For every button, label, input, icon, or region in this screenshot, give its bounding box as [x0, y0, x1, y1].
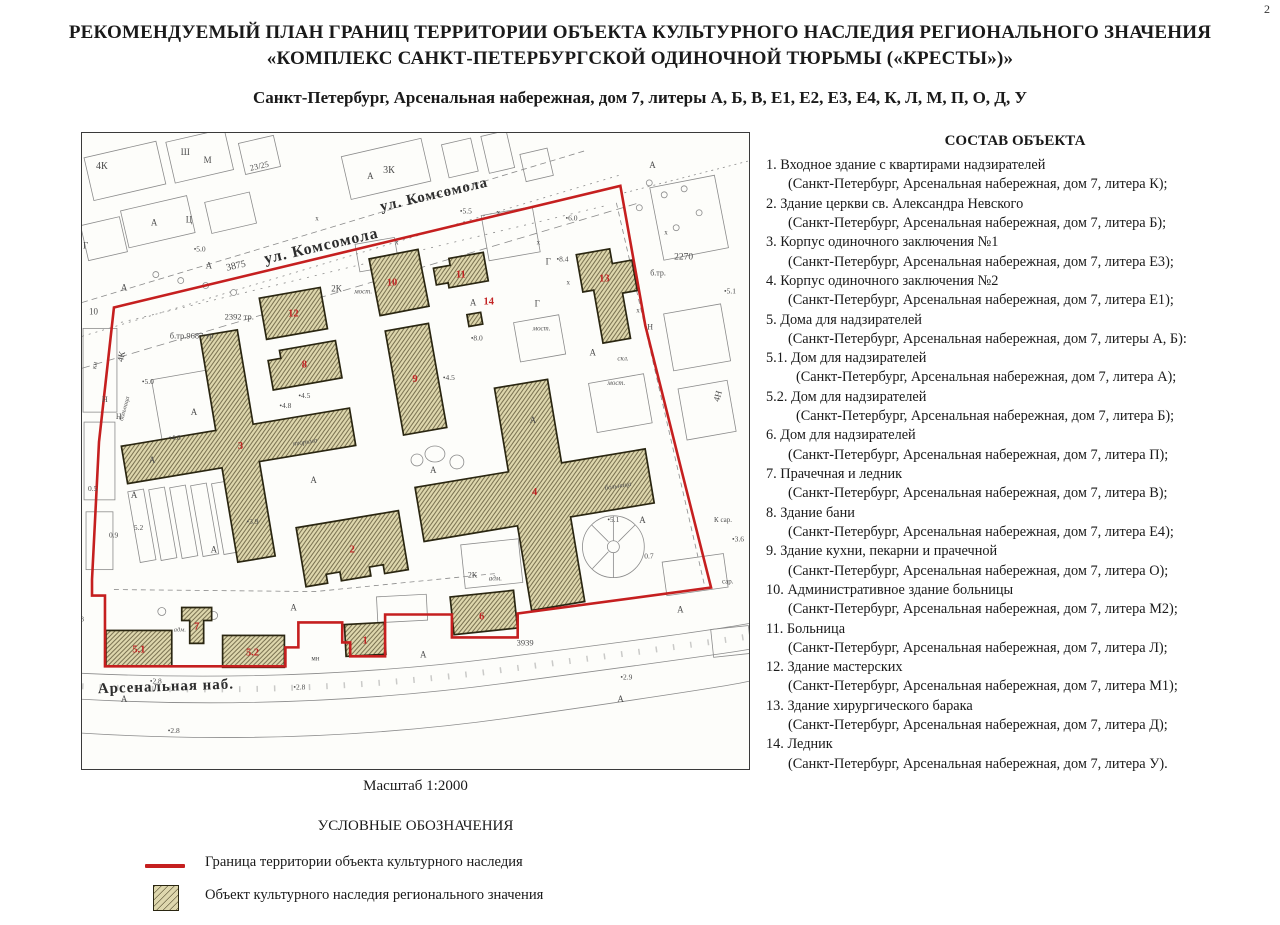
- building-number-label: 1: [363, 635, 368, 646]
- map-annotation: •8.4: [557, 255, 569, 264]
- map-annotation: М: [204, 155, 212, 165]
- map-annotation: А: [589, 347, 596, 357]
- boundary-line-swatch: [145, 864, 185, 868]
- building-number-label: 8: [302, 359, 307, 370]
- building-number-label: 4: [532, 487, 538, 498]
- hatch-swatch: [153, 885, 179, 911]
- map-annotation: х: [567, 279, 571, 287]
- composition-item-address: (Санкт-Петербург, Арсенальная набережная…: [766, 639, 1264, 658]
- map-annotation: А: [121, 694, 128, 704]
- map-annotation: •2.8: [293, 682, 305, 691]
- map-annotation: 0.5: [88, 484, 98, 493]
- page-title-line2: «КОМПЛЕКС САНКТ-ПЕТЕРБУРГСКОЙ ОДИНОЧНОЙ …: [30, 46, 1250, 72]
- map-annotation: х: [395, 239, 399, 247]
- map-annotation: А: [206, 261, 213, 271]
- composition-item: 5.1. Дом для надзирателей: [766, 349, 1264, 368]
- street-label: ул. Комсомола: [379, 175, 490, 215]
- building-number-label: 7: [194, 621, 199, 632]
- map-annotation: х: [315, 215, 319, 223]
- map-annotation: А: [649, 160, 656, 170]
- map-annotation: •5.0: [142, 377, 154, 386]
- map-annotation: А: [617, 694, 624, 704]
- map-annotation: •2.8: [168, 726, 180, 735]
- map-annotation: мост.: [353, 287, 372, 295]
- map-annotation: •5.1: [607, 515, 619, 524]
- map-annotation: адм.: [174, 626, 187, 633]
- map-annotation: х: [664, 229, 668, 237]
- map-annotation: А: [639, 515, 646, 525]
- legend-title: УСЛОВНЫЕ ОБОЗНАЧЕНИЯ: [81, 818, 750, 835]
- map-annotation: А: [151, 218, 158, 228]
- map-annotation: •2.9: [620, 672, 632, 681]
- map-scale-label: Масштаб 1:2000: [81, 778, 750, 795]
- composition-item-address: (Санкт-Петербург, Арсенальная набережная…: [766, 677, 1264, 696]
- composition-item-address: (Санкт-Петербург, Арсенальная набережная…: [766, 407, 1264, 426]
- map-annotation: 3875: [225, 259, 247, 274]
- composition-item-address: (Санкт-Петербург, Арсенальная набережная…: [766, 368, 1264, 387]
- map-annotation: Г: [546, 257, 551, 267]
- map-annotation: 2К: [331, 284, 342, 294]
- composition-item-address: (Санкт-Петербург, Арсенальная набережная…: [766, 562, 1264, 581]
- map-annotation: Ш: [181, 147, 190, 157]
- composition-item: 11. Больница: [766, 620, 1264, 639]
- composition-item: 5.2. Дом для надзирателей: [766, 388, 1264, 407]
- composition-item: 8. Здание бани: [766, 504, 1264, 523]
- composition-list: 1. Входное здание с квартирами надзирате…: [766, 156, 1264, 774]
- composition-item-address: (Санкт-Петербург, Арсенальная набережная…: [766, 716, 1264, 735]
- map-canvas: ул. Комсомолаул. КомсомолаАрсенальная на…: [82, 133, 749, 769]
- map-annotation: •6.0: [566, 214, 578, 223]
- composition-item-address: (Санкт-Петербург, Арсенальная набережная…: [766, 214, 1264, 233]
- map-annotation: А: [290, 602, 297, 612]
- street-label: ул. Комсомола: [262, 225, 380, 268]
- map-annotation: Н: [102, 395, 108, 404]
- map-annotation: •5.5: [460, 207, 472, 216]
- map-annotation: кн: [90, 361, 99, 370]
- map-annotation: 3939: [517, 637, 534, 647]
- map-annotation: Н: [647, 322, 653, 331]
- map-annotation: сар.: [722, 578, 734, 586]
- map-annotation: мн: [311, 654, 319, 662]
- map-annotation: 23/25: [249, 159, 270, 173]
- map-annotation: б.тр.9687 тр: [170, 330, 214, 340]
- map-annotation: Г: [535, 298, 540, 308]
- composition-panel: СОСТАВ ОБЪЕКТА 1. Входное здание с кварт…: [766, 133, 1264, 774]
- map-annotation: 0.9: [109, 531, 119, 540]
- map-annotation: •4.5: [443, 373, 455, 382]
- map-annotation: 10: [89, 306, 98, 316]
- building-number-label: 6: [479, 611, 484, 622]
- building-10: [369, 249, 429, 315]
- building-number-label: 11: [456, 270, 466, 281]
- composition-item-address: (Санкт-Петербург, Арсенальная набережная…: [766, 330, 1264, 349]
- composition-item: 10. Административное здание больницы: [766, 581, 1264, 600]
- composition-item-address: (Санкт-Петербург, Арсенальная набережная…: [766, 600, 1264, 619]
- map-annotation: мост.: [532, 324, 551, 332]
- map-annotation: А: [211, 545, 218, 555]
- map-annotation: б.тр.: [650, 269, 666, 278]
- map-annotation: А: [191, 407, 198, 417]
- building-number-label: 5.1: [132, 644, 145, 655]
- composition-item: 3. Корпус одиночного заключения №1: [766, 233, 1264, 252]
- composition-item-address: (Санкт-Петербург, Арсенальная набережная…: [766, 446, 1264, 465]
- map-annotation: А: [677, 604, 684, 614]
- document-page: 2 РЕКОМЕНДУЕМЫЙ ПЛАН ГРАНИЦ ТЕРРИТОРИИ О…: [0, 0, 1280, 925]
- composition-item-address: (Санкт-Петербург, Арсенальная набережная…: [766, 523, 1264, 542]
- composition-item: 12. Здание мастерских: [766, 658, 1264, 677]
- legend-label-object: Объект культурного наследия региональног…: [205, 887, 543, 904]
- page-number: 2: [1264, 2, 1270, 17]
- page-subtitle: Санкт-Петербург, Арсенальная набережная,…: [30, 88, 1250, 108]
- site-plan-map: ул. Комсомолаул. КомсомолаАрсенальная на…: [81, 132, 750, 770]
- map-annotation: А: [149, 455, 156, 465]
- map-annotation: •5.1: [724, 286, 736, 295]
- composition-item: 4. Корпус одиночного заключения №2: [766, 272, 1264, 291]
- composition-item: 5. Дома для надзирателей: [766, 311, 1264, 330]
- map-annotation: 5.2: [134, 523, 144, 532]
- composition-item-address: (Санкт-Петербург, Арсенальная набережная…: [766, 175, 1264, 194]
- composition-item: 13. Здание хирургического барака: [766, 697, 1264, 716]
- map-annotation: А: [131, 490, 138, 500]
- map-annotation: •4.8: [279, 401, 291, 410]
- building-number-label: 10: [387, 278, 397, 289]
- map-annotation: А: [470, 297, 477, 307]
- map-annotation: мост.: [606, 379, 625, 387]
- map-annotation: А: [121, 283, 128, 293]
- map-annotation: К сар.: [714, 516, 732, 524]
- composition-item: 2. Здание церкви св. Александра Невского: [766, 195, 1264, 214]
- map-annotation: •2.8: [82, 614, 84, 623]
- map-annotation: •8.0: [471, 333, 483, 342]
- composition-title: СОСТАВ ОБЪЕКТА: [766, 133, 1264, 150]
- map-annotation: Н: [116, 412, 122, 421]
- map-annotation: 4К: [115, 349, 127, 362]
- map-annotation: А: [530, 415, 537, 425]
- building-number-label: 3: [238, 441, 243, 452]
- map-annotation: 4Н: [711, 389, 724, 403]
- map-annotation: 0.7: [644, 552, 654, 561]
- building-number-label: 13: [599, 274, 609, 285]
- building-number-label: 9: [412, 374, 417, 385]
- map-annotation: х: [636, 306, 640, 314]
- map-annotation: х: [537, 239, 541, 247]
- map-annotation: Г: [83, 241, 88, 251]
- composition-item-address: (Санкт-Петербург, Арсенальная набережная…: [766, 253, 1264, 272]
- map-annotation: А: [420, 649, 427, 659]
- composition-item-address: (Санкт-Петербург, Арсенальная набережная…: [766, 755, 1264, 774]
- map-annotation: •5.0: [194, 245, 206, 254]
- page-title-line1: РЕКОМЕНДУЕМЫЙ ПЛАН ГРАНИЦ ТЕРРИТОРИИ ОБЪ…: [30, 20, 1250, 46]
- composition-item: 1. Входное здание с квартирами надзирате…: [766, 156, 1264, 175]
- map-annotation: скл.: [617, 354, 629, 362]
- building-number-label: 14: [484, 296, 495, 307]
- building-number-label: 12: [288, 308, 298, 319]
- map-annotation: 2К: [468, 571, 478, 580]
- map-annotation: А: [430, 465, 437, 475]
- map-annotation: 4К: [96, 161, 108, 172]
- map-annotation: А: [310, 475, 317, 485]
- map-annotation: •4.8: [169, 433, 181, 442]
- building-number-label: 5.2: [246, 647, 259, 658]
- map-annotation: А: [367, 171, 374, 181]
- composition-item: 7. Прачечная и ледник: [766, 465, 1264, 484]
- map-annotation: 2392 тр.: [225, 311, 254, 321]
- composition-item-address: (Санкт-Петербург, Арсенальная набережная…: [766, 291, 1264, 310]
- legend-label-boundary: Граница территории объекта культурного н…: [205, 854, 523, 871]
- page-title: РЕКОМЕНДУЕМЫЙ ПЛАН ГРАНИЦ ТЕРРИТОРИИ ОБЪ…: [30, 20, 1250, 72]
- map-annotation: •3.6: [732, 535, 744, 544]
- map-annotation: •2.8: [150, 676, 162, 685]
- map-annotation: Ц: [186, 215, 193, 225]
- composition-item-address: (Санкт-Петербург, Арсенальная набережная…: [766, 484, 1264, 503]
- map-annotation: адм.: [489, 575, 502, 583]
- map-annotation: 3К: [383, 165, 395, 176]
- building-number-label: 2: [350, 545, 355, 556]
- composition-item: 14. Ледник: [766, 735, 1264, 754]
- street-label: Арсенальная наб.: [98, 676, 235, 697]
- map-annotation: х: [497, 209, 501, 217]
- map-annotation: 2270: [674, 253, 693, 263]
- composition-item: 6. Дом для надзирателей: [766, 426, 1264, 445]
- map-annotation: •4.5: [298, 391, 310, 400]
- building-14: [467, 312, 483, 326]
- composition-item: 9. Здание кухни, пекарни и прачечной: [766, 542, 1264, 561]
- map-annotation: •3.9: [247, 517, 259, 526]
